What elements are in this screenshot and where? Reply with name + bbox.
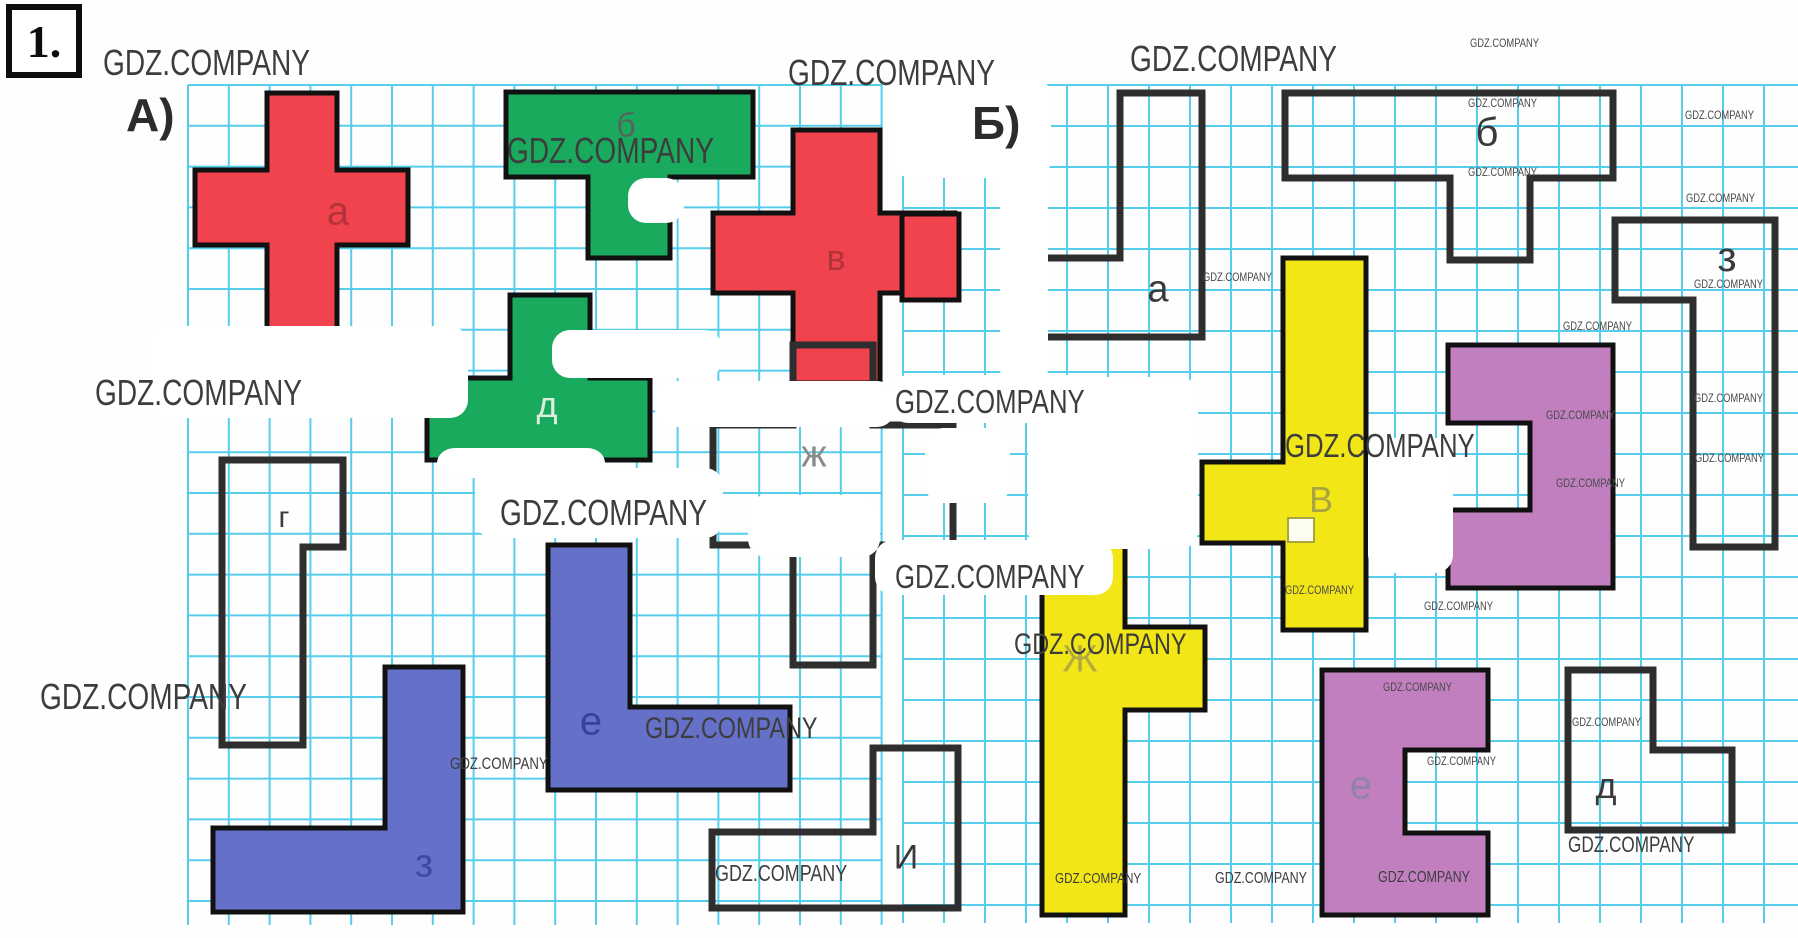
shape-label-e-purple: е xyxy=(1350,764,1372,809)
panel-label-a: А) xyxy=(126,88,175,142)
watermark-5: GDZ.COMPANY xyxy=(500,492,707,534)
watermark-4: GDZ.COMPANY xyxy=(95,372,302,414)
watermark-25: GDZ.COMPANY xyxy=(1546,408,1615,422)
shape-label-z-outline-b: з xyxy=(1717,233,1736,281)
shape-label-i-outline: И xyxy=(894,839,918,878)
watermark-18: GDZ.COMPANY xyxy=(1470,36,1539,50)
shape-red-square xyxy=(902,214,959,300)
watermark-20: GDZ.COMPANY xyxy=(1468,165,1537,179)
watermark-21: GDZ.COMPANY xyxy=(1685,108,1754,122)
watermark-23: GDZ.COMPANY xyxy=(1694,277,1763,291)
watermark-29: GDZ.COMPANY xyxy=(1572,715,1641,729)
watermark-12: GDZ.COMPANY xyxy=(715,860,847,887)
panel-label-b: Б) xyxy=(972,96,1020,150)
whiteout-blob-11 xyxy=(437,448,605,478)
watermark-30: GDZ.COMPANY xyxy=(1203,270,1272,284)
watermark-34: GDZ.COMPANY xyxy=(1285,583,1354,597)
watermark-0: GDZ.COMPANY xyxy=(103,42,310,84)
watermark-9: GDZ.COMPANY xyxy=(1285,427,1475,465)
shape-label-d-outline-b: д xyxy=(1595,765,1616,807)
shape-g-purple xyxy=(1448,345,1613,588)
watermark-14: GDZ.COMPANY xyxy=(450,754,548,774)
whiteout-blob-2 xyxy=(655,381,895,427)
whiteout-blob-12 xyxy=(628,178,684,223)
shape-z-outline-b xyxy=(1615,220,1775,547)
watermark-15: GDZ.COMPANY xyxy=(1055,870,1141,887)
watermark-27: GDZ.COMPANY xyxy=(1695,451,1764,465)
shape-label-zh-outline: ж xyxy=(801,434,826,477)
shape-e-blue-ell xyxy=(548,545,790,790)
watermark-8: GDZ.COMPANY xyxy=(895,558,1085,596)
watermark-17: GDZ.COMPANY xyxy=(1378,869,1470,887)
whiteout-blob-1 xyxy=(552,330,722,378)
watermark-2: GDZ.COMPANY xyxy=(1130,38,1337,80)
watermark-22: GDZ.COMPANY xyxy=(1686,191,1755,205)
watermark-19: GDZ.COMPANY xyxy=(1468,96,1537,110)
shape-label-b-outline-b: б xyxy=(1476,111,1499,156)
watermark-33: GDZ.COMPANY xyxy=(1427,754,1496,768)
shape-label-a-outline-b: а xyxy=(1147,269,1168,312)
watermark-11: GDZ.COMPANY xyxy=(645,712,817,746)
watermark-26: GDZ.COMPANY xyxy=(1694,391,1763,405)
worksheet-canvas xyxy=(0,0,1798,938)
watermark-32: GDZ.COMPANY xyxy=(1383,680,1452,694)
watermark-13: GDZ.COMPANY xyxy=(1568,832,1694,858)
watermark-31: GDZ.COMPANY xyxy=(1424,599,1493,613)
shape-label-e-blue-ell: е xyxy=(580,700,602,745)
shape-label-z-blue-ell: з xyxy=(415,842,433,887)
watermark-28: GDZ.COMPANY xyxy=(1556,476,1625,490)
watermark-3: GDZ.COMPANY xyxy=(507,130,714,172)
watermark-7: GDZ.COMPANY xyxy=(895,383,1085,421)
whiteout-blob-3 xyxy=(748,495,880,557)
shape-b-outline-b xyxy=(1285,93,1613,260)
shape-label-a-red-cross: а xyxy=(327,190,349,235)
shape-label-d-green-tee: д xyxy=(536,384,557,426)
shape-label-v-yellow: В xyxy=(1309,479,1333,521)
whiteout-blob-4 xyxy=(925,428,1010,503)
watermark-24: GDZ.COMPANY xyxy=(1563,319,1632,333)
watermark-10: GDZ.COMPANY xyxy=(1014,628,1186,662)
shape-a-red-cross xyxy=(195,93,408,330)
shape-label-g-outline: г xyxy=(279,501,290,535)
watermark-6: GDZ.COMPANY xyxy=(40,676,247,718)
shape-d-outline-b xyxy=(1568,670,1732,830)
workbook-scan-page: 1. А)Б)абвдгжезИабВЖедзGDZ.COMPANYGDZ.CO… xyxy=(0,0,1798,938)
erased-label-box xyxy=(1288,518,1314,542)
shape-label-v-red-cross: в xyxy=(826,237,845,279)
shape-zh-yellow xyxy=(1042,543,1205,915)
watermark-1: GDZ.COMPANY xyxy=(788,52,995,94)
watermark-16: GDZ.COMPANY xyxy=(1215,870,1307,888)
